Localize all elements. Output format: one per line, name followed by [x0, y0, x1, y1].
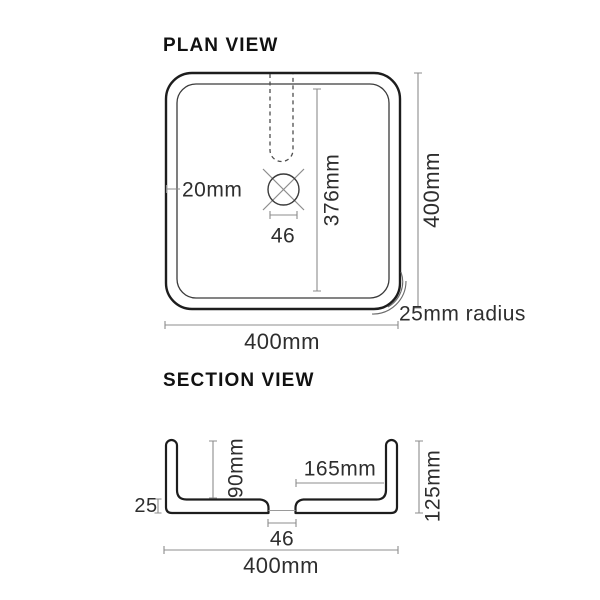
plan-dim-overall-height: 400mm: [421, 152, 443, 228]
basin-technical-drawing: PLAN VIEW 20mm 376mm 46 400mm 400mm 25mm…: [0, 0, 600, 600]
plan-view-title: PLAN VIEW: [163, 36, 278, 55]
section-dim-drain-width: 46: [270, 529, 294, 550]
plan-dim-overall-width: 400mm: [244, 331, 320, 353]
drawing-linework: [0, 0, 600, 600]
plan-dim-drain-width: 46: [271, 226, 295, 247]
section-dim-line-bowl-depth: [209, 441, 217, 498]
section-dim-overall-width: 400mm: [243, 555, 319, 577]
section-dim-drain-to-wall: 165mm: [304, 459, 377, 480]
section-profile-left: [166, 440, 269, 513]
plan-dim-inner-length: 376mm: [322, 154, 343, 227]
section-dim-bowl-depth: 90mm: [226, 438, 247, 498]
section-dim-overall-height: 125mm: [423, 450, 444, 523]
plan-dim-rim-thickness: 20mm: [182, 180, 242, 201]
section-view-title: SECTION VIEW: [163, 371, 315, 390]
section-dim-line-drain-width: [268, 519, 296, 527]
plan-dim-line-overall-width: [165, 321, 398, 329]
plan-corner-radius-note: 25mm radius: [399, 304, 526, 325]
section-dim-base-thickness: 25: [134, 496, 157, 516]
